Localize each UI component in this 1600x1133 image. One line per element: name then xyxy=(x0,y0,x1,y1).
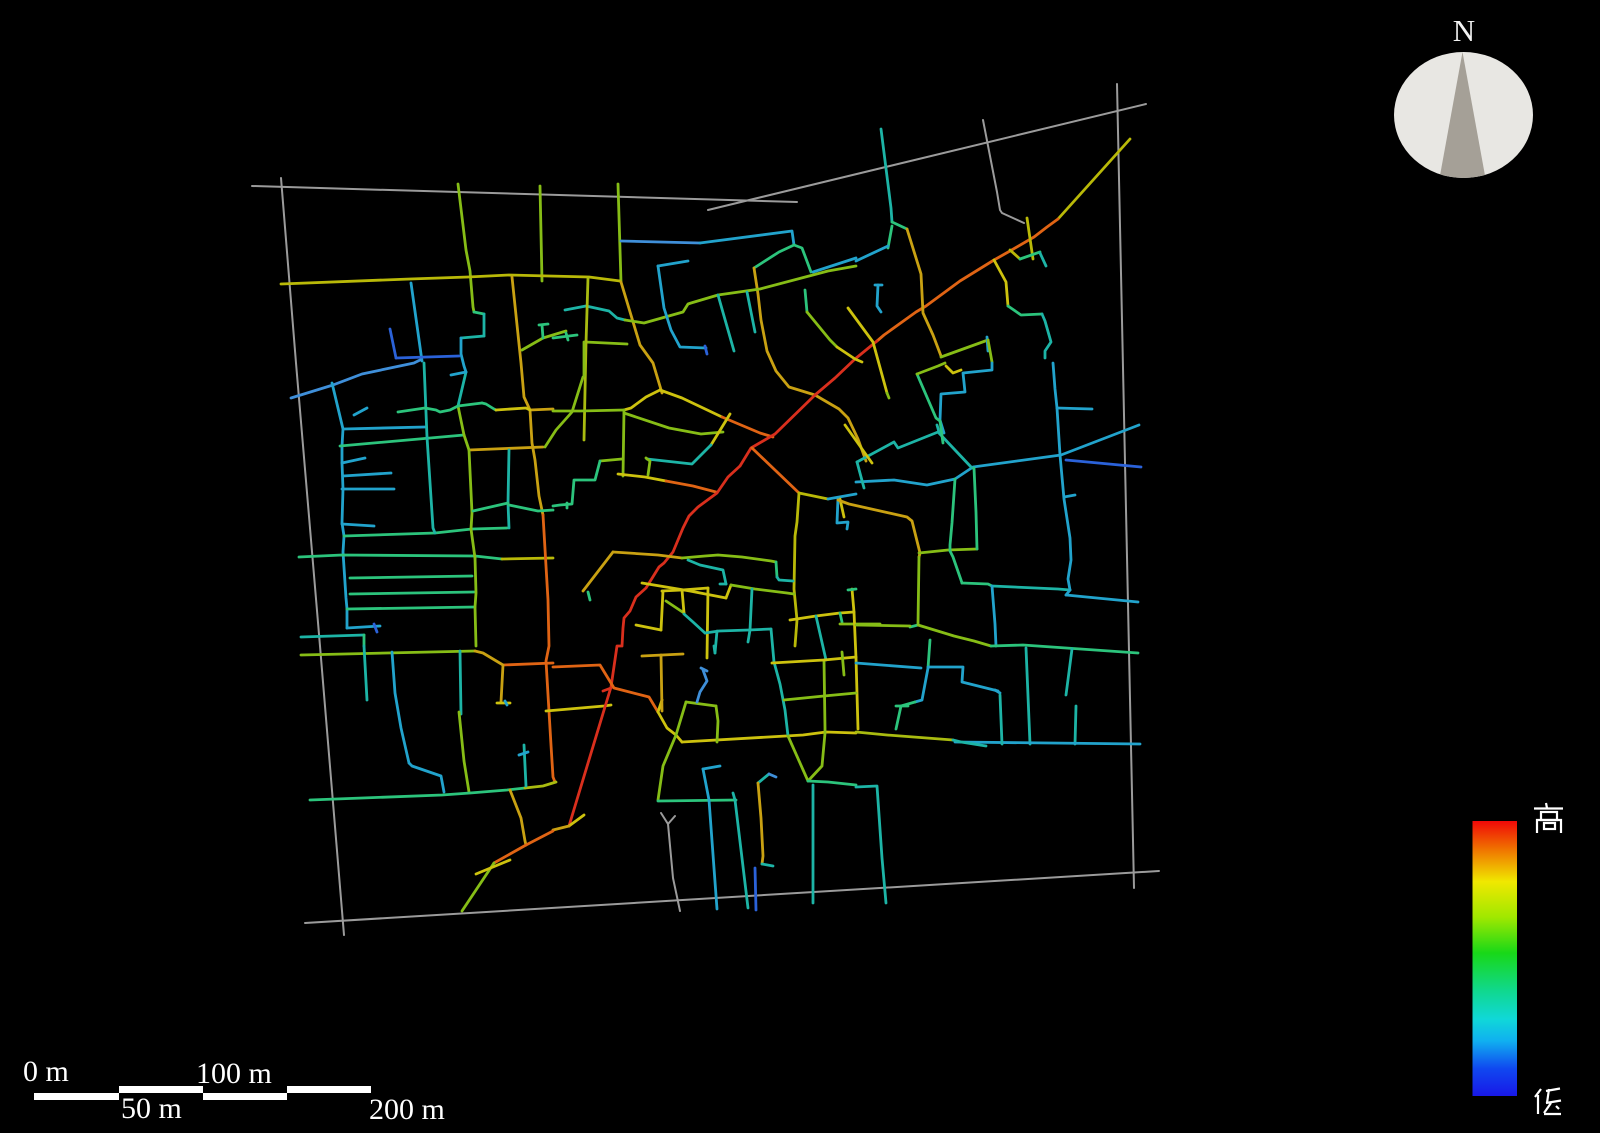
svg-text:100 m: 100 m xyxy=(196,1057,272,1090)
svg-text:N: N xyxy=(1453,13,1475,48)
svg-text:200 m: 200 m xyxy=(369,1093,445,1126)
svg-text:0 m: 0 m xyxy=(23,1055,69,1088)
svg-text:50 m: 50 m xyxy=(121,1092,182,1125)
